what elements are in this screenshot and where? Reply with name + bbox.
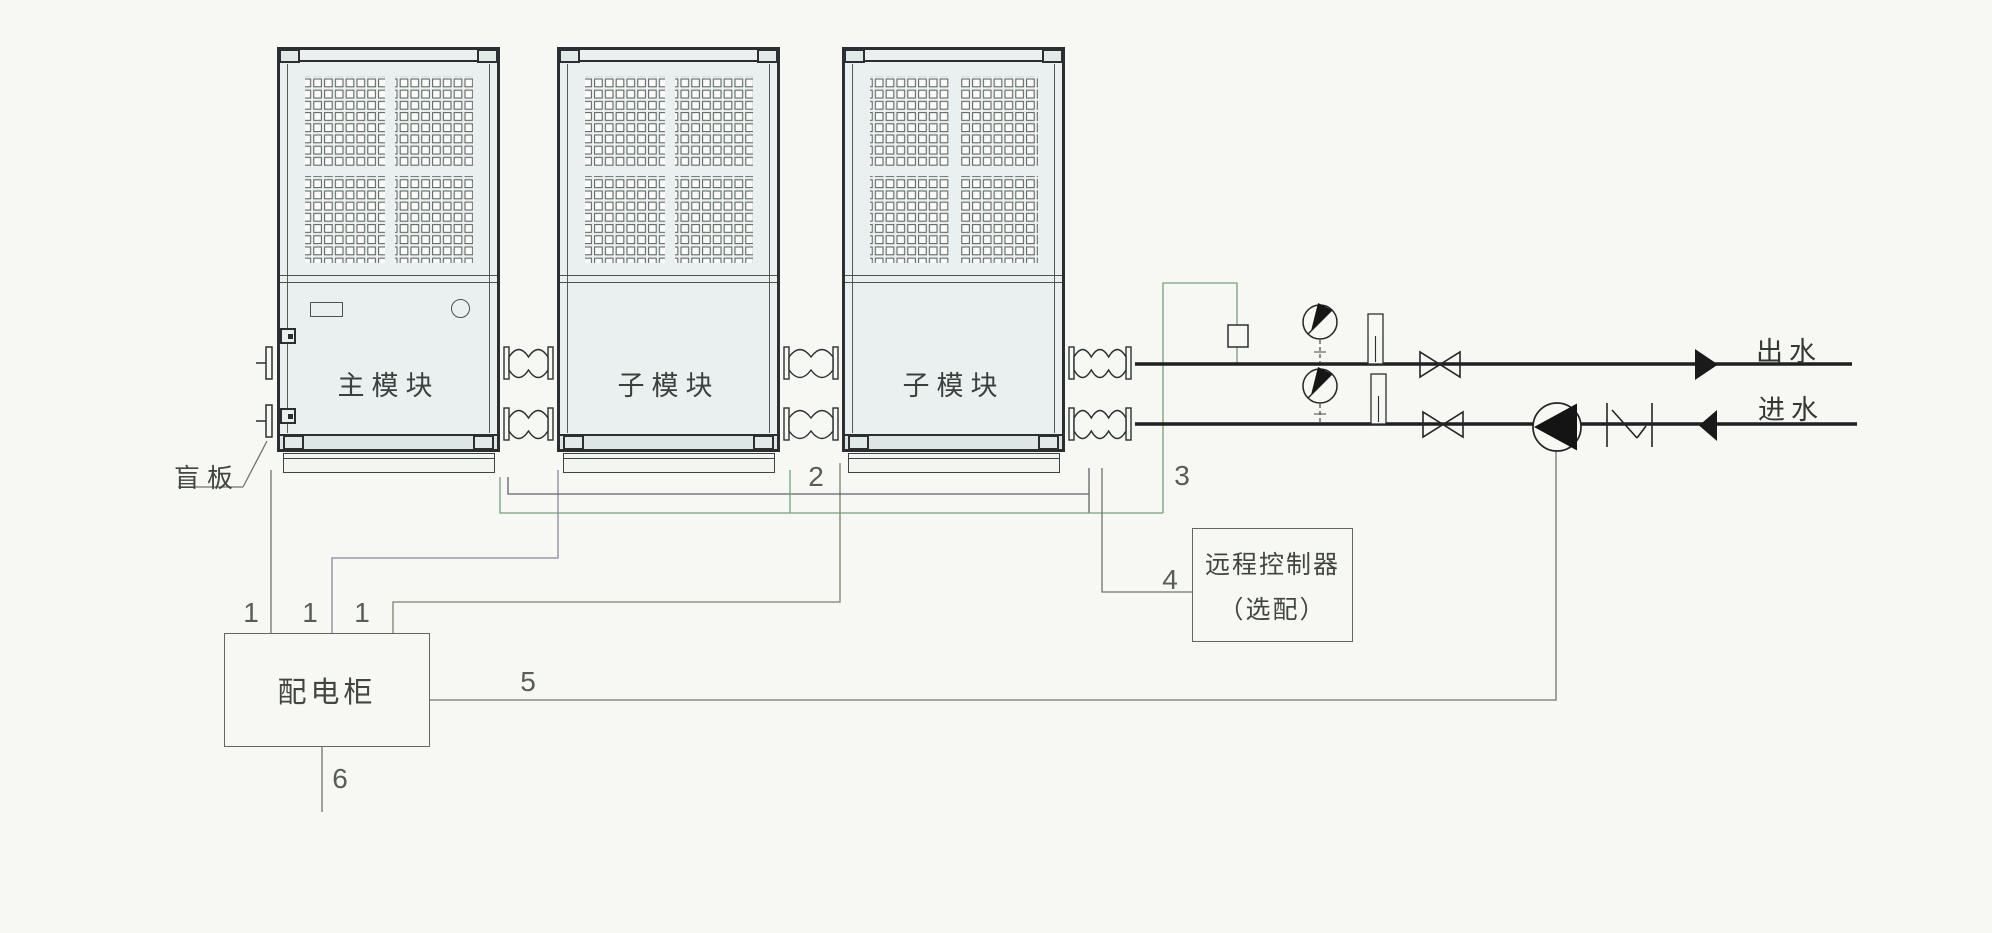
remote-controller-label: 远程控制器: [1205, 545, 1340, 581]
module-corner-block: [844, 49, 865, 63]
water-pipes: [1135, 364, 1857, 424]
module-base-plinth: [283, 453, 495, 473]
blind-plate-clamp: [280, 408, 296, 424]
flex-connector: [784, 347, 838, 379]
module-base-plinth: [563, 453, 775, 473]
distribution-cabinet-label: 配电柜: [277, 669, 376, 711]
wire-number-3: 3: [1171, 460, 1193, 492]
outlet-shutoff-valve: [1420, 352, 1460, 377]
pressure-gauge-inlet: [1303, 367, 1337, 423]
flex-connector: [1069, 347, 1131, 379]
thermometer-well-outlet: [1368, 314, 1383, 364]
module-corner-block: [563, 435, 584, 450]
sub-module-cabinet-2: 子模块: [842, 47, 1065, 452]
flex-connector: [504, 347, 553, 379]
remote-controller-box: 远程控制器 （选配）: [1192, 528, 1353, 642]
module-corner-block: [1042, 49, 1063, 63]
blind-plate-flange: [256, 347, 272, 437]
pipe-temp-sensor: [1228, 325, 1248, 347]
module-corner-block: [757, 49, 778, 63]
module-panel-divider: [280, 275, 497, 283]
inlet-water-label: 进水: [1758, 388, 1824, 427]
y-strainer: [1607, 403, 1652, 447]
outlet-flow-arrow: [1695, 349, 1718, 380]
main-module-label: 主模块: [280, 364, 497, 403]
module-corner-block: [848, 435, 869, 450]
module-top-rail: [296, 50, 481, 62]
inlet-shutoff-valve: [1423, 412, 1463, 437]
power-wire-module3: [393, 463, 840, 633]
distribution-cabinet-box: 配电柜: [224, 633, 430, 747]
flex-connector: [504, 408, 553, 440]
wire-number-1a: 1: [240, 597, 262, 629]
sub-module-cabinet-1: 子模块: [557, 47, 780, 452]
module-bottom-rail: [845, 434, 1062, 449]
wire-number-1c: 1: [351, 597, 373, 629]
wire-number-2: 2: [805, 461, 827, 493]
module-panel-divider: [560, 275, 777, 283]
module-bottom-rail: [280, 434, 497, 449]
module-panel-divider: [845, 275, 1062, 283]
module-top-rail: [861, 50, 1046, 62]
thermometer-well-inlet: [1371, 374, 1386, 424]
module-corner-block: [283, 435, 304, 450]
inlet-flow-arrow: [1699, 410, 1717, 441]
circulation-pump: [1533, 403, 1581, 451]
module-top-rail: [576, 50, 761, 62]
flex-connector: [1069, 408, 1131, 440]
blind-plate-label: 盲板: [174, 458, 240, 495]
wire-number-1b: 1: [299, 597, 321, 629]
remote-controller-optional-label: （选配）: [1218, 590, 1326, 626]
module-corner-block: [753, 435, 774, 450]
sub-module-label: 子模块: [845, 364, 1062, 403]
comm-bus-wire: [508, 468, 1089, 513]
piping-wiring-diagram: 主模块 子模块 子模块: [0, 0, 1992, 933]
wire-number-6: 6: [329, 763, 351, 795]
sub-module-label: 子模块: [560, 364, 777, 403]
flex-connector: [784, 408, 838, 440]
module-corner-block: [477, 49, 498, 63]
module-base-plinth: [848, 453, 1060, 473]
wire-number-5: 5: [517, 666, 539, 698]
door-knob: [451, 299, 470, 318]
pump-power-wire: [430, 451, 1556, 700]
main-module-cabinet: 主模块: [277, 47, 500, 452]
blind-plate-clamp: [280, 328, 296, 344]
nameplate: [310, 302, 343, 317]
outlet-water-label: 出水: [1756, 330, 1822, 369]
module-corner-block: [473, 435, 494, 450]
module-corner-block: [559, 49, 580, 63]
module-corner-block: [1038, 435, 1059, 450]
wire-number-4: 4: [1159, 564, 1181, 596]
pressure-gauge-outlet: [1303, 303, 1337, 363]
module-bottom-rail: [560, 434, 777, 449]
module-corner-block: [279, 49, 300, 63]
